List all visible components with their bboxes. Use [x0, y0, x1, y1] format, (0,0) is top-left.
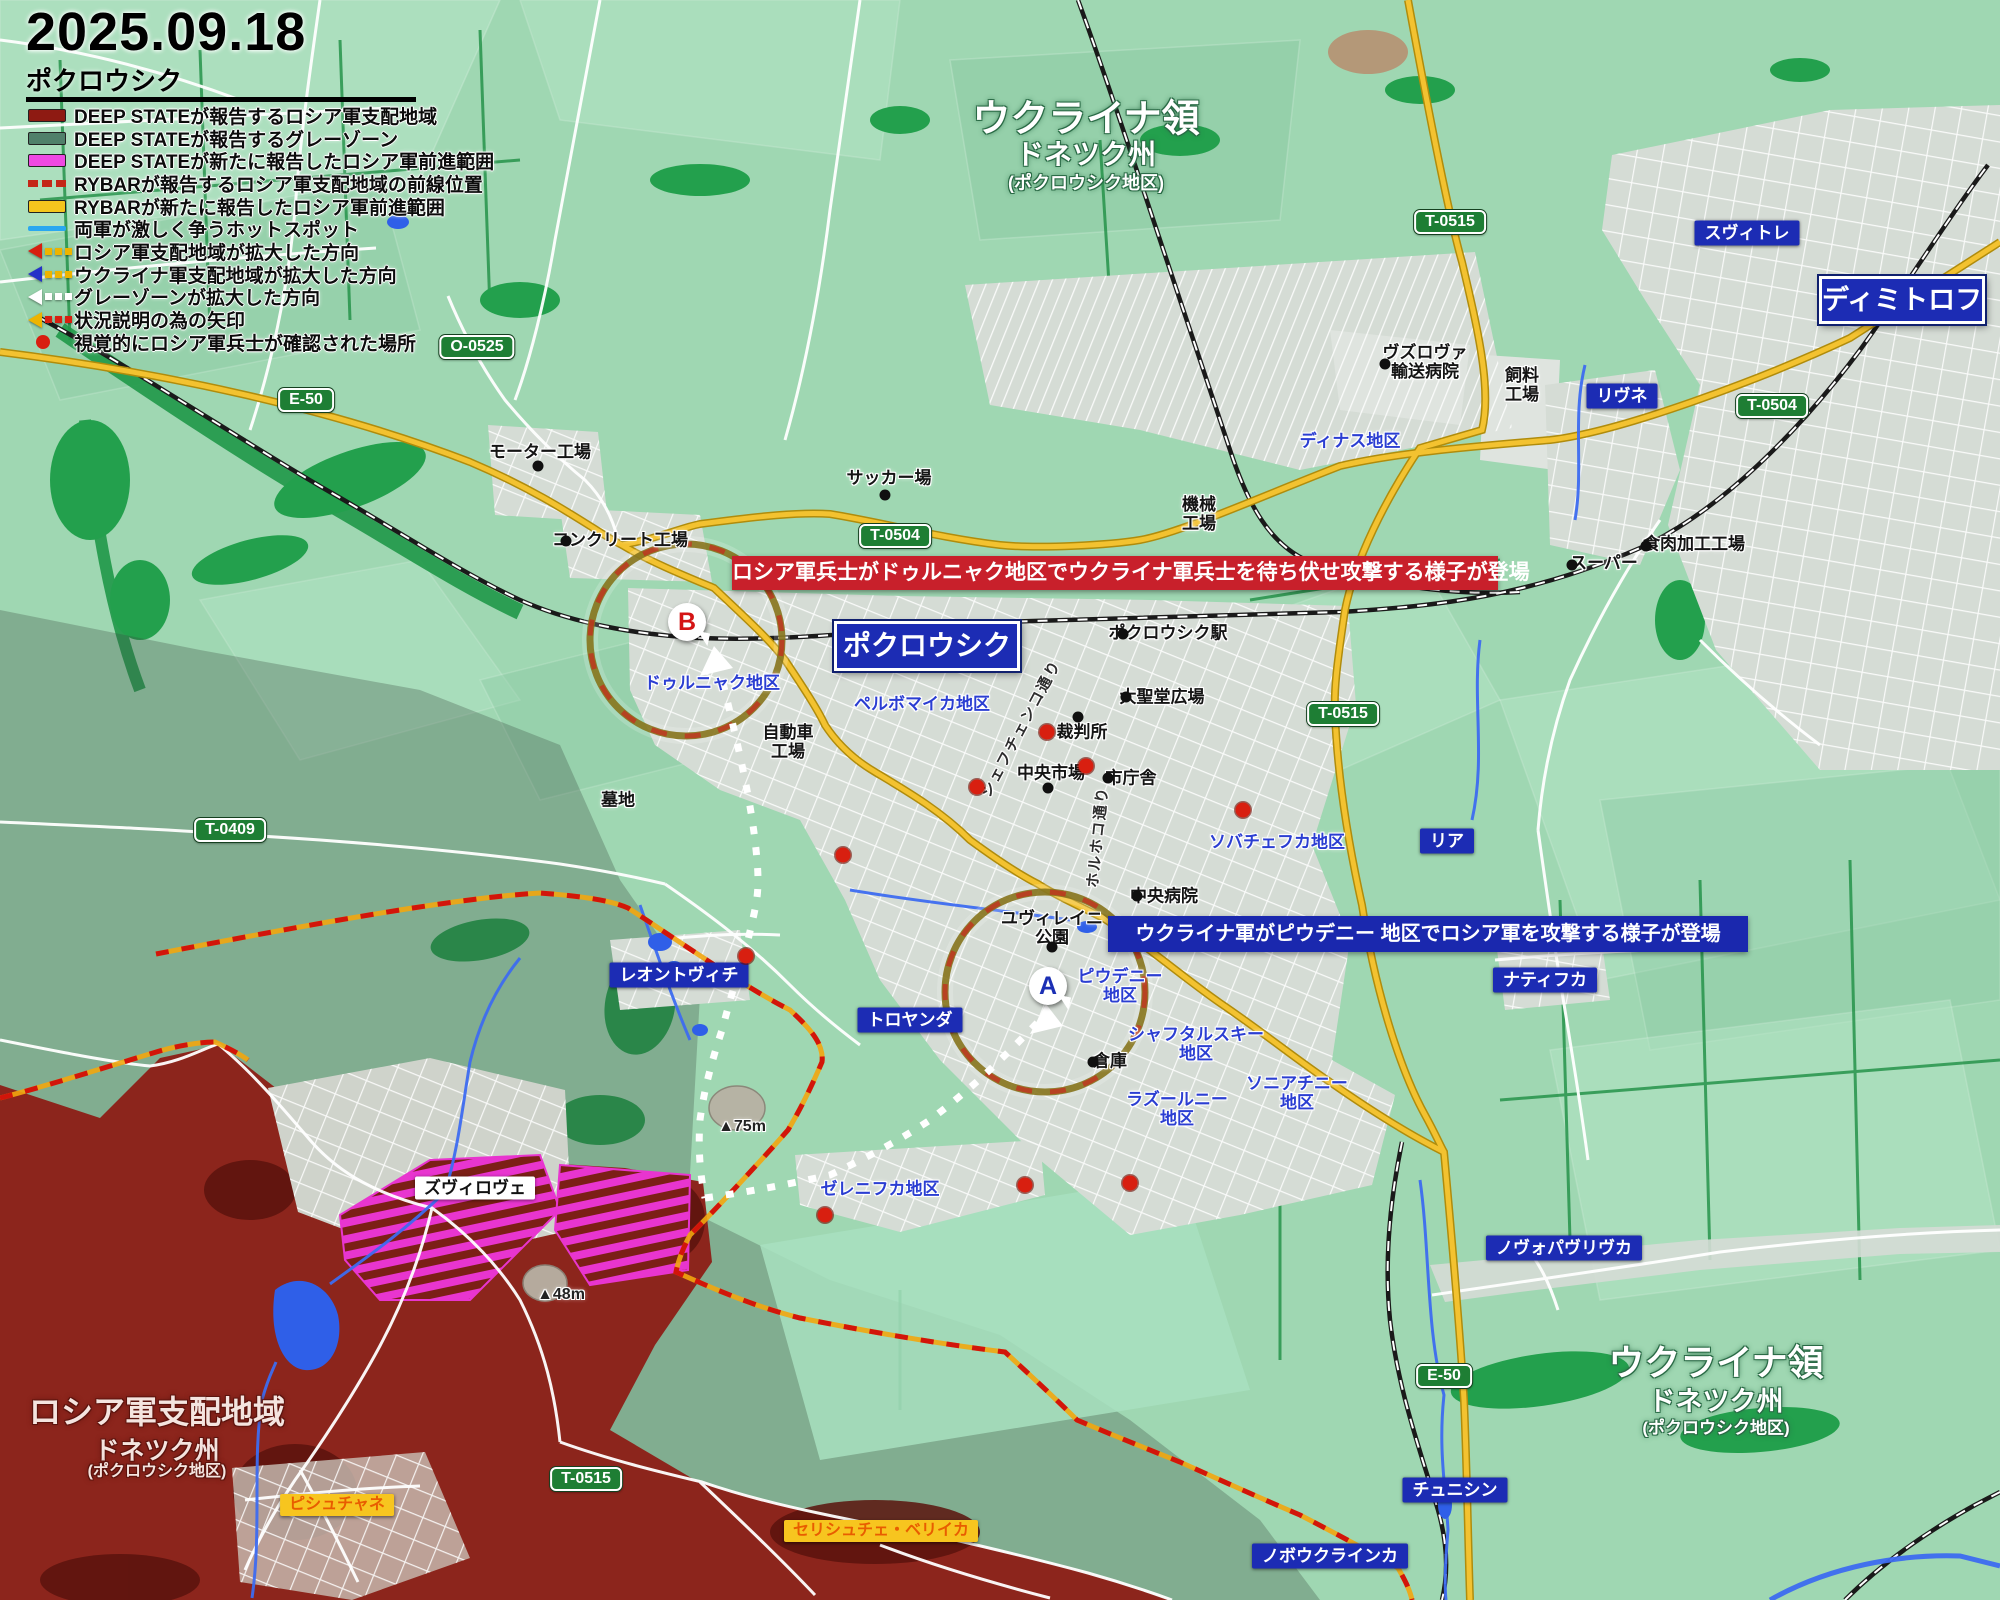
- map-legend: DEEP STATEが報告するロシア軍支配地域DEEP STATEが報告するグレ…: [28, 104, 494, 354]
- legend-item: RYBARが報告するロシア軍支配地域の前線位置: [28, 172, 494, 195]
- spot-marker-letter: B: [678, 608, 696, 637]
- legend-item-label: 視覚的にロシア軍兵士が確認された場所: [74, 329, 416, 356]
- legend-item: ウクライナ軍支配地域が拡大した方向: [28, 263, 494, 286]
- russian-soldier-sighting-dot: [1079, 759, 1094, 774]
- situation-banner-ukrainian: ウクライナ軍がピウデニー 地区でロシア軍を攻撃する様子が登場: [1108, 916, 1748, 952]
- legend-swatch-icon: [28, 130, 74, 146]
- spot-marker-a: A: [1029, 967, 1067, 1005]
- legend-swatch-icon: [28, 153, 74, 169]
- legend-item: DEEP STATEが報告するロシア軍支配地域: [28, 104, 494, 127]
- legend-arrow-icon: [28, 266, 74, 282]
- russian-soldier-sighting-dot: [970, 780, 985, 795]
- poi-dot: [1047, 942, 1058, 953]
- poi-dot: [1073, 712, 1084, 723]
- russian-soldier-sighting-dot: [818, 1208, 833, 1223]
- legend-dot-icon: [28, 334, 74, 350]
- poi-dot: [1641, 541, 1652, 552]
- legend-item: DEEP STATEが報告するグレーゾーン: [28, 127, 494, 150]
- legend-item: 視覚的にロシア軍兵士が確認された場所: [28, 331, 494, 354]
- poi-dot: [1132, 891, 1143, 902]
- legend-item: DEEP STATEが新たに報告したロシア軍前進範囲: [28, 149, 494, 172]
- poi-dot: [1103, 773, 1114, 784]
- legend-item: グレーゾーンが拡大した方向: [28, 286, 494, 309]
- legend-item: ロシア軍支配地域が拡大した方向: [28, 240, 494, 263]
- territory-russian-line1: ロシア軍支配地域: [29, 1387, 285, 1433]
- territory-bottom-right-line1: ウクライナ領: [1608, 1334, 1823, 1386]
- poi-dot: [1118, 629, 1129, 640]
- russian-soldier-sighting-dot: [836, 848, 851, 863]
- russian-soldier-sighting-dot: [1040, 725, 1055, 740]
- russian-soldier-sighting-dot: [739, 949, 754, 964]
- poi-dot: [1121, 692, 1132, 703]
- poi-dot: [1567, 560, 1578, 571]
- legend-swatch-icon: [28, 198, 74, 214]
- spot-marker-letter: A: [1039, 972, 1057, 1001]
- poi-dot: [533, 461, 544, 472]
- legend-item: 両軍が激しく争うホットスポット: [28, 217, 494, 240]
- russian-soldier-sighting-dot: [1236, 803, 1251, 818]
- territory-bottom-right-line3: (ポクロウシク地区): [1642, 1414, 1789, 1439]
- legend-arrow-icon: [28, 289, 74, 305]
- poi-dot: [561, 536, 572, 547]
- city-label-pokrovsk: ポクロウシク: [834, 621, 1020, 671]
- legend-line-icon: [28, 221, 74, 237]
- legend-item: RYBARが新たに報告したロシア軍前進範囲: [28, 195, 494, 218]
- legend-swatch-icon: [28, 107, 74, 123]
- map-date: 2025.09.18: [26, 4, 306, 61]
- city-label-dimitrov: ディミトロフ: [1819, 276, 1985, 324]
- situation-banner-russian: ロシア軍兵士がドゥルニャク地区でウクライナ軍兵士を待ち伏せ攻撃する様子が登場: [732, 556, 1498, 590]
- map-place-name: ポクロウシク: [26, 61, 306, 98]
- legend-dash-icon: [28, 175, 74, 191]
- spot-marker-b: B: [668, 603, 706, 641]
- territory-top-line2: ドネツク州: [1016, 133, 1156, 173]
- russian-soldier-sighting-dot: [1123, 1176, 1138, 1191]
- territory-top-line3: (ポクロウシク地区): [1008, 169, 1164, 195]
- poi-dot: [880, 490, 891, 501]
- legend-arrow-icon: [28, 243, 74, 259]
- russian-soldier-sighting-dot: [1018, 1178, 1033, 1193]
- map-header: 2025.09.18 ポクロウシク: [26, 4, 306, 98]
- legend-item: 状況説明の為の矢印: [28, 308, 494, 331]
- legend-arrow-icon: [28, 312, 74, 328]
- war-map: ヴズロヴァ 輸送病院飼料 工場機械 工場スーパー食肉加工工場モーター工場コンクリ…: [0, 0, 2000, 1600]
- poi-dot: [1043, 783, 1054, 794]
- poi-dot: [1088, 1057, 1099, 1068]
- territory-russian-line3: (ポクロウシク地区): [88, 1457, 227, 1481]
- poi-dot: [1380, 359, 1391, 370]
